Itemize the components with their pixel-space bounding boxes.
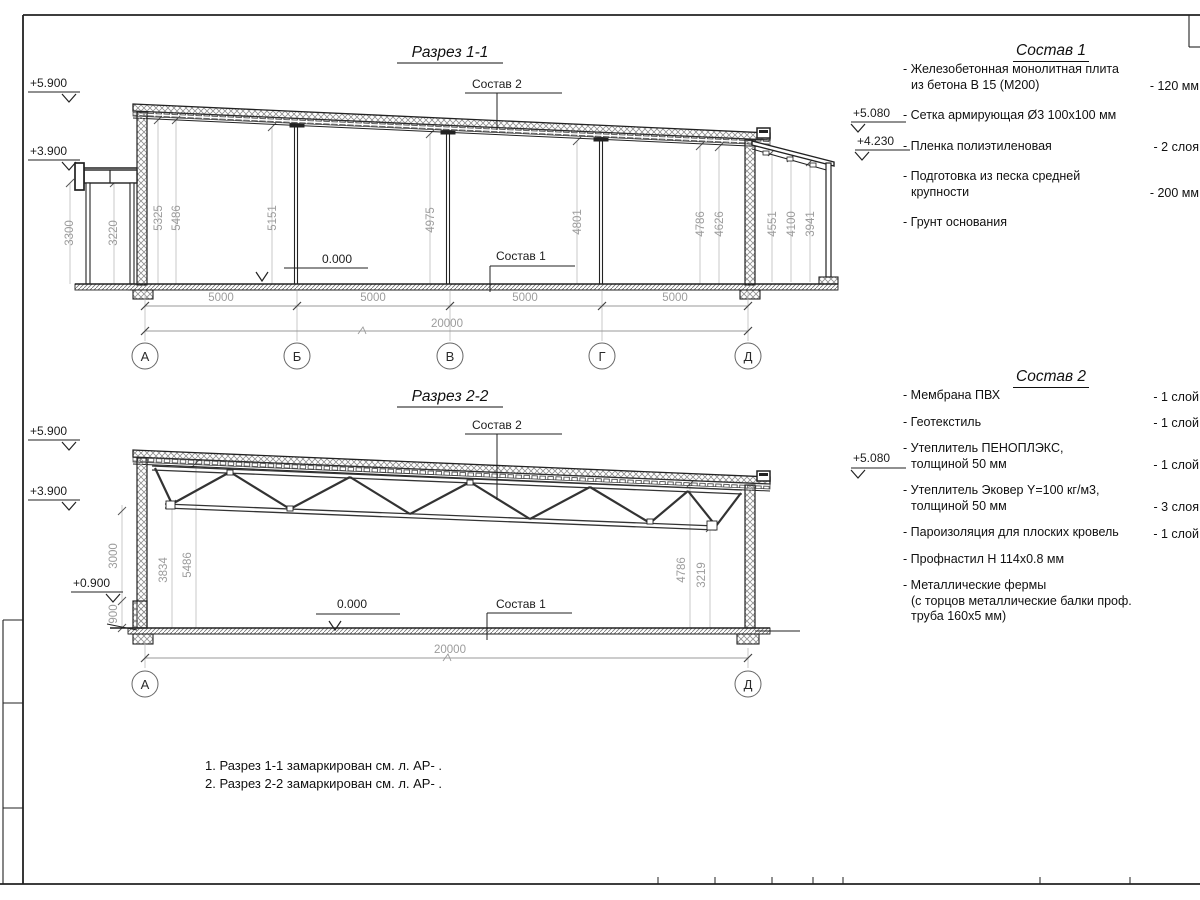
sostav1-panel: Состав 1 - Железобетонная монолитная пли… — [903, 42, 1199, 246]
dim-label: 3220 — [108, 220, 120, 246]
list-item-value: - 1 слой — [1153, 527, 1199, 541]
dim-label: 5325 — [153, 205, 165, 231]
s2-vertical-dims: 3000 900 3834 5486 4786 3219 — [108, 543, 708, 623]
list-item: - Подготовка из песка средней крупности … — [903, 169, 1199, 200]
elevation-arrow-icon — [256, 272, 268, 281]
s2-floor — [107, 624, 800, 644]
s2-bottom-dims: 20000 — [141, 640, 752, 668]
s1-elevation-left-top: +5.900 — [28, 76, 80, 102]
elevation-arrow-icon — [851, 470, 865, 478]
s2-sostav1-label: Состав 1 — [496, 597, 546, 611]
s1-axis-bubbles: А Б В Г Д — [132, 343, 761, 369]
s2-elevation-right-top: +5.080 — [851, 451, 906, 478]
s1-wall-A — [137, 112, 147, 285]
s2-elev-5080: +5.080 — [853, 451, 890, 465]
s1-sostav2-label: Состав 2 — [472, 77, 522, 91]
s2-extension-lines — [122, 463, 710, 628]
s2-elevation-left-mid: +3.900 — [28, 484, 80, 510]
elevation-arrow-icon — [62, 502, 76, 510]
list-item-text: - Грунт основания — [903, 215, 1007, 231]
list-item: - Профнастил Н 114х0.8 мм — [903, 552, 1199, 568]
axis-label: А — [141, 349, 150, 364]
axis-label: Б — [293, 349, 302, 364]
dim-break-icon — [358, 327, 366, 334]
section2-title: Разрез 2-2 — [412, 388, 489, 405]
s2-sostav2-label: Состав 2 — [472, 418, 522, 432]
dim-total-label: 20000 — [434, 644, 466, 656]
dim-label: 4626 — [714, 211, 726, 237]
list-item-value: - 120 мм — [1150, 79, 1199, 93]
list-item-text: - Утеплитель ПЕНОПЛЭКС, толщиной 50 мм — [903, 441, 1063, 472]
list-item: - Утеплитель ПЕНОПЛЭКС, толщиной 50 мм -… — [903, 441, 1199, 472]
s1-elevation-right-top: +5.080 — [851, 106, 906, 132]
dim-label: 4100 — [786, 211, 798, 237]
dim-label: 3834 — [158, 557, 170, 583]
list-item-value: - 2 слоя — [1154, 140, 1199, 154]
elevation-arrow-icon — [62, 442, 76, 450]
s2-zero-label: 0.000 — [337, 597, 367, 611]
sostav2-title: Состав 2 — [1013, 368, 1089, 388]
dim-label: 5486 — [182, 552, 194, 578]
list-item-text: - Подготовка из песка средней крупности — [903, 169, 1080, 200]
list-item: - Пленка полиэтиленовая - 2 слоя — [903, 139, 1199, 155]
s1-elev-3900: +3.900 — [30, 144, 67, 158]
dim-total-label: 20000 — [431, 318, 463, 330]
section-1-1: Разрез 1-1 — [28, 44, 910, 369]
dim-label: 3000 — [108, 543, 120, 569]
axis-label: В — [446, 349, 455, 364]
s1-elev-5080: +5.080 — [853, 106, 890, 120]
s1-extension-lines — [70, 120, 810, 284]
s1-roof — [133, 104, 770, 147]
elevation-arrow-icon — [62, 94, 76, 102]
list-item-text: - Пленка полиэтиленовая — [903, 139, 1052, 155]
list-item-value: - 1 слой — [1153, 390, 1199, 404]
list-item: - Грунт основания — [903, 215, 1199, 231]
s2-axis-bubbles: А Д — [132, 671, 761, 697]
list-item-text: - Сетка армирующая Ø3 100х100 мм — [903, 108, 1116, 124]
dim-label: 5000 — [360, 292, 386, 304]
titleblock-ticks — [658, 877, 1130, 884]
list-item-value: - 1 слой — [1153, 416, 1199, 430]
dim-label: 4786 — [676, 557, 688, 583]
dim-label: 5486 — [171, 205, 183, 231]
s1-canopy — [75, 163, 137, 284]
list-item: - Геотекстиль - 1 слой — [903, 415, 1199, 431]
s2-elevation-left-top: +5.900 — [28, 424, 80, 450]
dim-label: 4551 — [767, 211, 779, 237]
dim-label: 3300 — [64, 220, 76, 246]
s2-elev-5900: +5.900 — [30, 424, 67, 438]
s1-zero-label: 0.000 — [322, 252, 352, 266]
note-line: 2. Разрез 2-2 замаркирован см. л. АР- . — [205, 775, 442, 793]
s1-elev-5900: +5.900 — [30, 76, 67, 90]
s1-zero-level: 0.000 — [256, 252, 368, 281]
dim-label: 900 — [108, 604, 120, 623]
section-2-2: Разрез 2-2 — [28, 388, 906, 697]
s1-vertical-dims: 3300 3220 5325 5486 5151 4975 4801 4786 … — [64, 205, 817, 246]
dim-label: 5151 — [267, 205, 279, 231]
list-item: - Утеплитель Эковер Y=100 кг/м3, толщино… — [903, 483, 1199, 514]
elevation-arrow-icon — [851, 124, 865, 132]
s1-sostav1-label: Состав 1 — [496, 249, 546, 263]
list-item-text: - Мембрана ПВХ — [903, 388, 1000, 404]
list-item-text: - Геотекстиль — [903, 415, 981, 431]
list-item: - Сетка армирующая Ø3 100х100 мм — [903, 108, 1199, 124]
axis-label: Г — [598, 349, 605, 364]
s1-elevation-right-mid: +4.230 — [855, 134, 910, 160]
list-item-text: - Пароизоляция для плоских кровель — [903, 525, 1119, 541]
list-item: - Пароизоляция для плоских кровель - 1 с… — [903, 525, 1199, 541]
s2-elev-0900: +0.900 — [73, 576, 110, 590]
elevation-arrow-icon — [62, 162, 76, 170]
list-item-value: - 1 слой — [1153, 458, 1199, 472]
dim-label: 5000 — [208, 292, 234, 304]
dim-label: 3941 — [805, 211, 817, 237]
dim-label: 3219 — [696, 562, 708, 588]
axis-label: Д — [744, 349, 753, 364]
list-item-text: - Утеплитель Эковер Y=100 кг/м3, толщино… — [903, 483, 1099, 514]
s1-wall-D — [745, 140, 755, 285]
sostav1-title: Состав 1 — [1013, 42, 1089, 62]
s1-bottom-dims: 5000 5000 5000 5000 20000 — [141, 291, 752, 341]
list-item-value: - 3 слоя — [1154, 500, 1199, 514]
list-item-text: - Железобетонная монолитная плита из бет… — [903, 62, 1119, 93]
s1-floor — [75, 284, 838, 299]
notes-block: 1. Разрез 1-1 замаркирован см. л. АР- . … — [205, 757, 442, 792]
list-item-text: - Металлические фермы (с торцов металлич… — [903, 578, 1132, 625]
elevation-arrow-icon — [855, 152, 869, 160]
dim-label: 5000 — [512, 292, 538, 304]
s2-elevation-left-low: +0.900 — [71, 576, 123, 602]
s2-zero-level: 0.000 — [316, 597, 400, 630]
elevation-arrow-icon — [106, 594, 120, 602]
list-item-value: - 200 мм — [1150, 186, 1199, 200]
s2-wall-D — [745, 485, 755, 628]
dim-label: 4801 — [572, 209, 584, 235]
note-line: 1. Разрез 1-1 замаркирован см. л. АР- . — [205, 757, 442, 775]
s2-elev-3900: +3.900 — [30, 484, 67, 498]
s1-elev-4230: +4.230 — [857, 134, 894, 148]
sostav2-panel: Состав 2 - Мембрана ПВХ - 1 слой - Геоте… — [903, 368, 1199, 636]
list-item: - Железобетонная монолитная плита из бет… — [903, 62, 1199, 93]
list-item-text: - Профнастил Н 114х0.8 мм — [903, 552, 1064, 568]
dim-label: 5000 — [662, 292, 688, 304]
drawing-sheet: Разрез 1-1 — [0, 0, 1200, 900]
section1-title: Разрез 1-1 — [412, 44, 489, 61]
s2-wall-A-base — [133, 601, 147, 628]
axis-label: Д — [744, 677, 753, 692]
list-item: - Металлические фермы (с торцов металлич… — [903, 578, 1199, 625]
s1-elevation-left-mid: +3.900 — [28, 144, 80, 170]
dim-label: 4786 — [695, 211, 707, 237]
list-item: - Мембрана ПВХ - 1 слой — [903, 388, 1199, 404]
dim-label: 4975 — [425, 207, 437, 233]
axis-label: А — [141, 677, 150, 692]
